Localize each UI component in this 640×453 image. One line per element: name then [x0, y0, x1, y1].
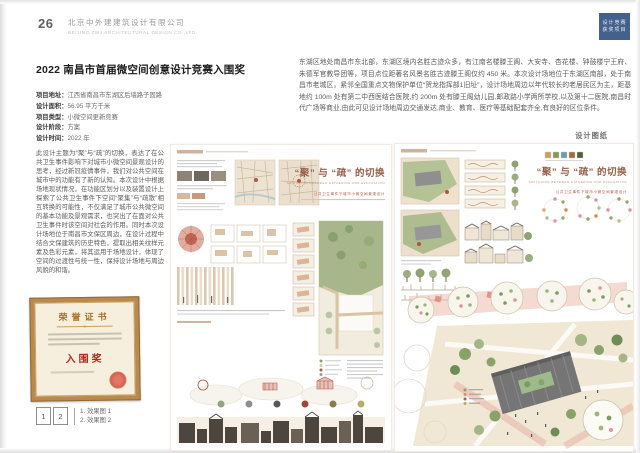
- company-logo: 北京中外建建筑设计有限公司 BEIJING ZWJ ARCHITECTURAL …: [68, 17, 198, 35]
- certificate-text-line: [48, 332, 122, 335]
- section-tab-line2: 获奖项目: [602, 27, 626, 33]
- certificate-text-line: [48, 337, 122, 340]
- board2-subtitle: 公共卫生事件下城市小微空间景观设计: [556, 189, 627, 194]
- red-seal-stamp: [109, 371, 126, 388]
- certificate-award-name: 入围奖: [36, 349, 134, 365]
- info-label: 设计时间：: [36, 135, 67, 142]
- info-row-area: 设计面积：56.95 平方千米: [36, 102, 186, 113]
- board1-title-en: SWITCHING BETWEEN GATHERING AND EVACUATI…: [287, 181, 385, 185]
- site-context-paragraph: 东湖区地处南昌市东北部，东湖区境内名胜古迹众多，有江南名楼滕王阁、大安寺、杏花楼…: [299, 57, 631, 115]
- certificate-title: 荣誉证书: [35, 309, 133, 323]
- certificate-text-line: [50, 371, 94, 374]
- info-label: 设计面积：: [36, 103, 67, 110]
- page-edge-left: [0, 0, 7, 453]
- page-edge-right: [636, 0, 640, 453]
- certificate-text-line: [48, 343, 100, 346]
- page-number: 26: [38, 16, 53, 31]
- info-row-type: 项目类型：小微空间更新竞赛: [36, 113, 186, 124]
- info-value: 小微空间更新竞赛: [67, 114, 117, 121]
- info-label: 设计阶段：: [36, 124, 67, 131]
- info-value: 2022 年: [67, 135, 89, 142]
- section-tab-line1: 设计竞赛: [602, 20, 626, 26]
- figure-caption-2: 2. 效果图 2: [80, 416, 111, 425]
- info-value: 江西省南昌市东湖区后墙路子固路: [67, 92, 161, 99]
- design-concept-paragraph: 此设计主题为“聚”与“疏”的切换，表达了在公共卫生事件影响下对城市小微空间景观设…: [36, 149, 164, 275]
- design-board-2-graphic: “聚” 与 “疏” 的切换 SWITCHING BETWEEN GATHERIN…: [395, 144, 633, 451]
- info-row-address: 项目地址：江西省南昌市东湖区后墙路子固路: [36, 91, 186, 102]
- figure-legend: 1 2 1. 效果图 1 2. 效果图 2: [36, 407, 111, 425]
- figure-index-box-2: 2: [53, 407, 68, 425]
- design-board-1: “聚” 与 “疏” 的切换 SWITCHING BETWEEN GATHERIN…: [170, 144, 392, 451]
- info-value: 方案: [67, 124, 80, 131]
- info-label: 项目地址：: [36, 92, 67, 99]
- board2-title: “聚” 与 “疏” 的切换: [537, 166, 627, 178]
- info-row-time: 设计时间：2022 年: [36, 134, 186, 145]
- company-name-en: BEIJING ZWJ ARCHITECTURAL DESIGN CO.,LTD…: [68, 30, 198, 35]
- board2-title-en: SWITCHING BETWEEN GATHERING AND EVACUATI…: [529, 180, 627, 184]
- info-value: 56.95 平方千米: [67, 103, 110, 110]
- legend-divider: [74, 408, 75, 425]
- board1-title: “聚” 与 “疏” 的切换: [295, 167, 385, 179]
- info-label: 项目类型：: [36, 114, 67, 121]
- award-certificate-photo: 荣誉证书 入围奖: [29, 296, 140, 402]
- certificate-paper: 荣誉证书 入围奖: [34, 301, 135, 396]
- page-edge-top: [0, 0, 640, 4]
- design-board-1-graphic: “聚” 与 “疏” 的切换 SWITCHING BETWEEN GATHERIN…: [171, 145, 391, 450]
- page-title: 2022 南昌市首届微空间创意设计竞赛入围奖: [36, 62, 266, 77]
- info-row-stage: 设计阶段：方案: [36, 123, 186, 134]
- company-name-cn: 北京中外建建筑设计有限公司: [68, 17, 198, 28]
- drawings-section-label: 设计图纸: [575, 131, 608, 141]
- design-board-2: “聚” 与 “疏” 的切换 SWITCHING BETWEEN GATHERIN…: [394, 143, 634, 452]
- figure-captions: 1. 效果图 1 2. 效果图 2: [80, 407, 111, 425]
- figure-caption-1: 1. 效果图 1: [80, 407, 111, 416]
- board1-subtitle: 公共卫生事件下城市小微空间景观设计: [314, 191, 385, 196]
- section-tab: 设计竞赛 获奖项目: [599, 13, 630, 40]
- project-info-list: 项目地址：江西省南昌市东湖区后墙路子固路 设计面积：56.95 平方千米 项目类…: [36, 91, 186, 145]
- certificate-flourish: [57, 325, 113, 329]
- figure-index-box-1: 1: [36, 407, 51, 425]
